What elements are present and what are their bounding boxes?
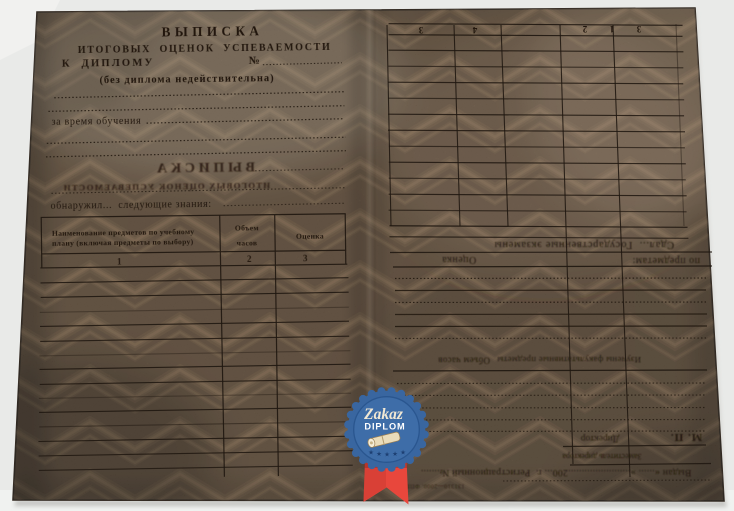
svg-text:★: ★: [368, 449, 374, 457]
svg-text:плану (включая предметы по выб: плану (включая предметы по выбору): [52, 237, 194, 248]
svg-text:3: 3: [303, 253, 308, 263]
svg-text:4: 4: [472, 25, 477, 35]
svg-text:★: ★: [392, 450, 398, 458]
svg-text:2: 2: [247, 254, 252, 264]
svg-text:1: 1: [609, 24, 614, 34]
svg-text:Директор: Директор: [580, 433, 619, 443]
svg-text:К ДИПЛОМУ: К ДИПЛОМУ: [62, 58, 155, 70]
svg-text:3: 3: [636, 24, 641, 34]
svg-text:за время обучения: за время обучения: [51, 116, 141, 128]
svg-text:Сдал... Государственные экзам: Сдал... Государственные экзамены: [494, 239, 674, 250]
svg-text:★: ★: [400, 449, 406, 457]
svg-text:Zakaz: Zakaz: [363, 406, 403, 423]
svg-text:обнаружил... следующие знания: обнаружил... следующие знания:: [51, 199, 212, 212]
svg-text:Наименование предметов по учеб: Наименование предметов по учебному: [52, 227, 195, 238]
svg-text:Изучены факультативные предмет: Изучены факультативные предметы: [497, 355, 641, 365]
svg-text:№: №: [249, 55, 260, 67]
svg-text:★: ★: [384, 451, 390, 459]
svg-text:по предметам:: по предметам:: [632, 255, 700, 266]
svg-text:Объем: Объем: [235, 223, 259, 232]
svg-text:★: ★: [376, 450, 382, 458]
svg-text:Выдан «...... »...............: Выдан «...... ».......................20…: [421, 467, 692, 478]
svg-text:Оценка: Оценка: [442, 254, 477, 265]
svg-text:DIPLOM: DIPLOM: [364, 422, 405, 432]
svg-text:3: 3: [418, 25, 423, 35]
svg-text:ВЫПИСКА: ВЫПИСКА: [153, 160, 255, 176]
svg-text:Заместитель директора: Заместитель директора: [562, 452, 641, 461]
svg-text:часов: часов: [237, 238, 258, 247]
svg-text:2: 2: [582, 24, 587, 34]
svg-text:М. П.: М. П.: [670, 431, 702, 443]
svg-text:Объем часов: Объем часов: [438, 356, 490, 366]
svg-text:Оценка: Оценка: [296, 231, 324, 240]
svg-text:1: 1: [117, 256, 122, 266]
svg-text:ВЫПИСКА: ВЫПИСКА: [162, 23, 264, 39]
svg-text:(без диплома недействительна): (без диплома недействительна): [99, 73, 274, 86]
